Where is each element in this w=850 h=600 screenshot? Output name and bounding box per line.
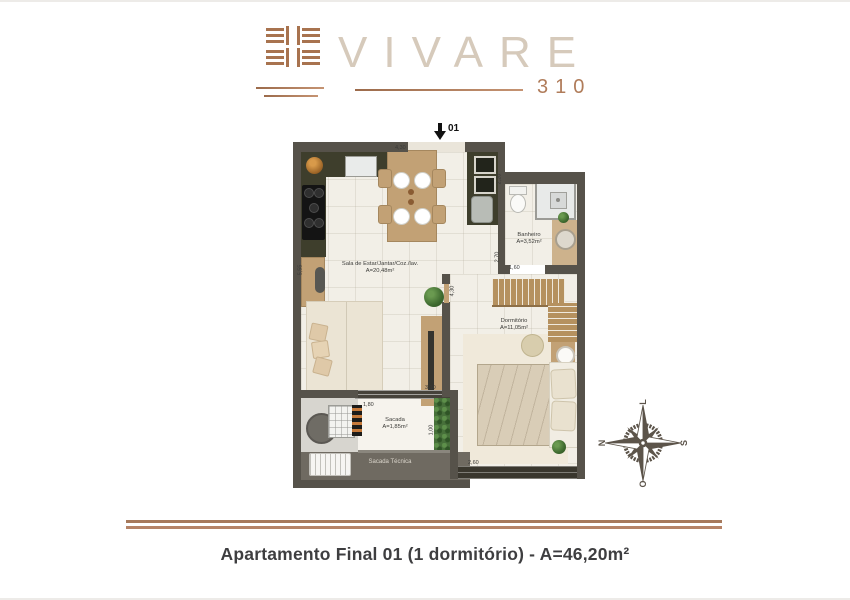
entrance-unit-label: 01 — [448, 123, 459, 134]
balcony-parapet — [358, 450, 450, 453]
living-room-area: A=20,48m² — [366, 268, 395, 274]
floorplan-page: VIVARE 310 — [0, 0, 850, 600]
burner — [304, 218, 314, 228]
plant — [552, 440, 566, 454]
burner — [309, 203, 319, 213]
washer — [474, 156, 496, 174]
logo-underline-1 — [256, 87, 324, 89]
grill — [328, 405, 355, 438]
dining-table — [387, 150, 437, 242]
grill-coals — [352, 405, 362, 436]
wall-segment — [442, 302, 450, 397]
chair — [378, 205, 392, 224]
bed-pillow — [550, 368, 577, 399]
compass-rose: L N S O — [600, 400, 686, 486]
wall-segment — [545, 265, 577, 274]
brand-name: VIVARE — [338, 28, 592, 78]
dimension-label: 4,30 — [449, 286, 455, 297]
shower-drain — [556, 198, 560, 202]
fruit-bowl — [306, 157, 323, 174]
vivare-logo-icon — [262, 24, 324, 82]
dimension-label: 2,60 — [468, 460, 479, 466]
table-bowl — [408, 199, 414, 205]
dimension-label: 1,00 — [428, 425, 434, 436]
floor-plan: 01 Sala de Estar/Jantar/Coz./lav. A=20,4… — [293, 122, 593, 492]
toilet-bowl — [510, 194, 526, 213]
logo-underline-2 — [264, 95, 318, 97]
wall-segment — [293, 142, 408, 152]
compass-star-icon — [600, 400, 686, 486]
footer-rule-1 — [126, 520, 722, 523]
footer-rule-2 — [126, 526, 722, 529]
unit-number: 310 — [537, 76, 591, 99]
dimension-label: 3,10 — [425, 385, 436, 391]
apartment-caption: Apartamento Final 01 (1 dormitório) - A=… — [0, 544, 850, 565]
chair — [378, 169, 392, 188]
compass-letter-south: S — [678, 437, 690, 449]
plate — [393, 208, 410, 225]
chair — [432, 205, 446, 224]
basin — [315, 267, 325, 293]
plate — [414, 208, 431, 225]
living-room-label: Sala de Estar/Jantar/Coz./lav. A=20,48m² — [330, 261, 430, 275]
compass-letter-north: N — [596, 437, 608, 449]
closet-right — [548, 303, 577, 343]
tv — [428, 331, 434, 393]
plant — [424, 287, 444, 307]
bedroom-door-leaf — [444, 284, 449, 303]
bathroom-label: Banheiro A=3,52m² — [499, 232, 559, 246]
wall-segment — [293, 142, 301, 488]
plant — [558, 212, 569, 223]
dryer — [474, 176, 496, 194]
bathroom-name: Banheiro — [517, 232, 540, 238]
table-bowl — [408, 189, 414, 195]
tech-balcony-label: Sacada Técnica — [340, 459, 440, 467]
pouf — [521, 334, 544, 357]
hedge-planter — [434, 398, 450, 452]
dimension-label: 5,55 — [297, 265, 303, 276]
balcony-area: A=1,85m² — [382, 424, 407, 430]
plate — [393, 172, 410, 189]
bedroom-label: Dormitório A=11,05m² — [479, 318, 549, 332]
balcony-name: Sacada — [385, 417, 405, 423]
balcony-label: Sacada A=1,85m² — [365, 417, 425, 431]
bed-pillow — [550, 400, 577, 431]
laundry-tub — [471, 196, 493, 223]
compass-letter-west: O — [637, 478, 649, 490]
wall-segment — [301, 390, 358, 398]
dimension-label: 2,70 — [494, 252, 500, 263]
bathroom-area: A=3,52m² — [516, 239, 541, 245]
wall-segment — [442, 274, 450, 284]
burner — [304, 188, 314, 198]
bedroom-area: A=11,05m² — [500, 325, 528, 331]
dimension-label: 1,80 — [363, 402, 374, 408]
burner — [314, 188, 324, 198]
dimension-label: 2,20 — [496, 174, 502, 185]
kitchen-sink — [345, 156, 377, 177]
bedroom-window-band — [455, 466, 577, 479]
burner — [314, 218, 324, 228]
chair — [432, 169, 446, 188]
bedroom-name: Dormitório — [501, 318, 528, 324]
wall-segment — [505, 172, 585, 184]
logo-rule — [355, 89, 523, 91]
wall-segment — [450, 390, 458, 479]
dimension-label: 1,60 — [509, 265, 520, 271]
living-room-name: Sala de Estar/Jantar/Coz./lav. — [342, 261, 418, 267]
dimension-label: 4,30 — [395, 145, 406, 151]
bed — [477, 364, 555, 446]
plate — [414, 172, 431, 189]
entrance-arrow-icon — [434, 131, 446, 140]
wall-segment — [293, 480, 470, 488]
wall-segment — [577, 172, 585, 479]
compass-letter-east: L — [637, 396, 649, 408]
